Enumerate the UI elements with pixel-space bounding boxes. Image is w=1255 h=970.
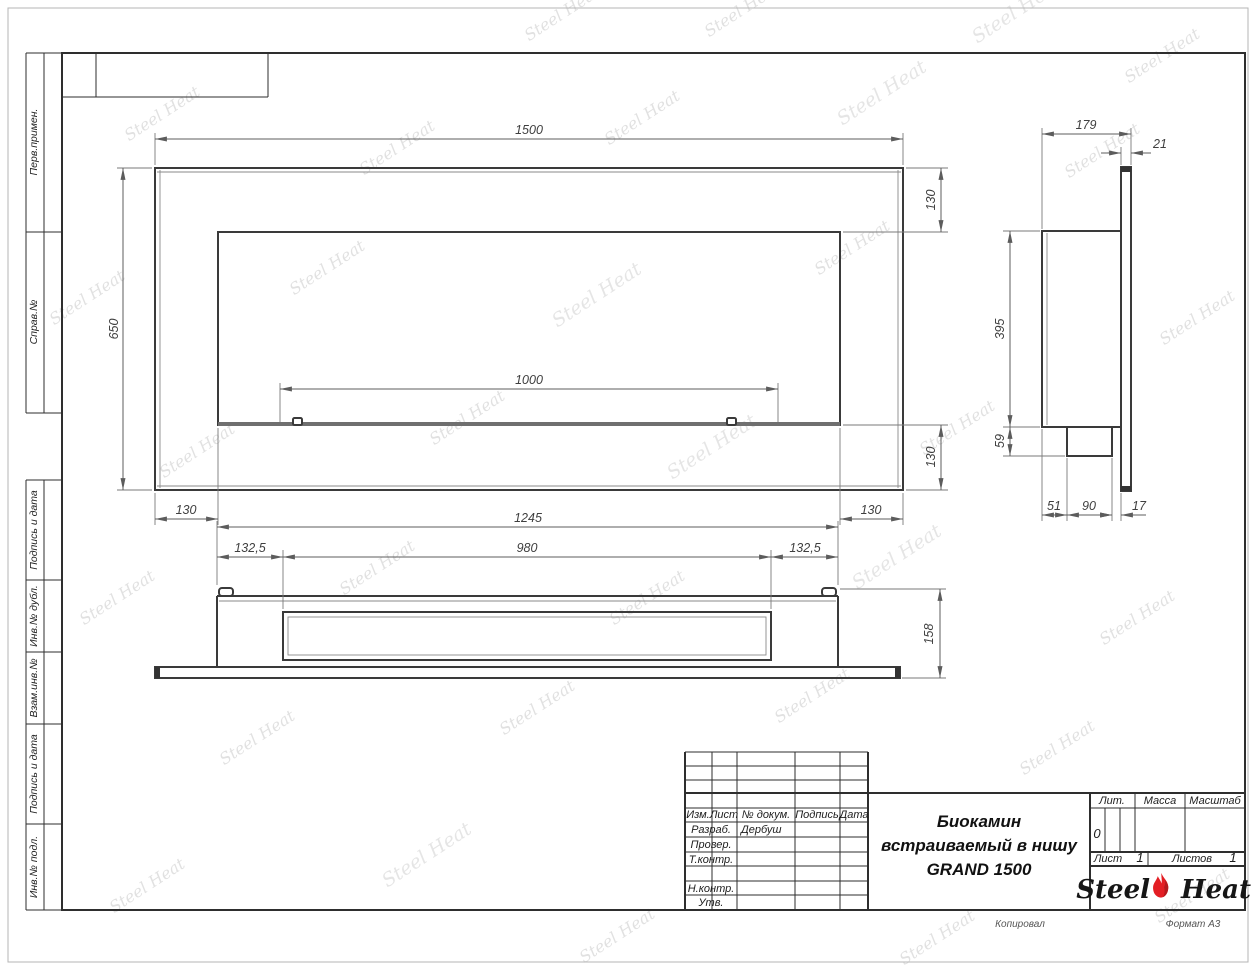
margin-label-perv-primen: Перв.примен. [28,109,40,176]
mass-label: Масса [1144,795,1177,807]
sheets-value: 1 [1229,850,1236,865]
dim-side-body-height: 395 [993,319,1007,340]
dim-bottom-margin-right: 132,5 [789,541,820,555]
watermark: Steel Heat [771,664,854,727]
watermark: Steel Heat [521,0,604,45]
side-view-dimensions: 179 21 395 59 51 90 17 [993,118,1167,521]
lit-value: 0 [1093,826,1101,841]
row-prover-label: Провер. [691,839,732,851]
dim-side-panel-thickness: 21 [1152,137,1167,151]
left-margin-blocks: Перв.примен. Справ.№ Подпись и дата Инв.… [26,53,62,910]
watermark: Steel Heat [121,82,204,145]
lit-label: Лит. [1098,795,1125,807]
logo-heat: Heat [1180,875,1251,905]
watermark: Steel Heat [548,258,646,332]
watermark: Steel Heat [1016,716,1099,779]
watermark: Steel Heat [286,236,369,299]
dim-side-tray-height: 59 [993,434,1007,448]
corner-stamp-box [62,53,268,97]
watermark: Steel Heat [811,216,894,279]
watermark: Steel Heat [848,520,946,594]
copied-label: Копировал [995,919,1045,930]
watermark: Steel Heat [663,410,761,484]
watermark: Steel Heat [378,818,476,892]
product-title-line1: Биокамин [937,812,1021,831]
dim-side-tray-depth: 90 [1082,499,1096,513]
col-podpis: Подпись [795,809,839,821]
burner-tab-right [727,418,736,425]
col-data: Дата [837,809,868,821]
row-utv-label: Утв. [698,897,724,909]
margin-label-inv-dubl: Инв.№ дубл. [28,585,40,647]
logo-steel: Steel [1076,875,1150,905]
dim-front-width: 1500 [515,123,543,137]
watermark: Steel Heat [76,566,159,629]
dim-front-burner-width: 1000 [515,373,543,387]
mount-tab-left [219,588,233,596]
dim-side-front-gap: 51 [1047,499,1061,513]
watermark: Steel Heat [426,386,509,449]
row-razrab-value: Дербуш [739,824,782,836]
col-list: Лист [709,809,738,821]
dim-front-offset-top: 130 [924,190,938,211]
watermark: Steel Heat [1121,24,1204,87]
dim-side-depth: 179 [1076,118,1097,132]
watermark: Steel Heat [1156,286,1239,349]
watermark: Steel Heat [1096,586,1179,649]
dim-bottom-margin-left: 132,5 [234,541,265,555]
margin-label-podpis-data-2: Подпись и дата [28,734,40,814]
col-izm: Изм. [686,809,709,821]
watermark: Steel Heat [576,904,659,967]
sheet-border [8,8,1248,962]
watermark: Steel Heat [496,676,579,739]
product-title-line3: GRAND 1500 [927,860,1032,879]
mount-tab-right [822,588,836,596]
front-view [155,168,903,490]
front-panel-plate [155,667,900,678]
margin-label-podpis-data-1: Подпись и дата [28,490,40,570]
sheet-label: Лист [1093,853,1122,865]
burner-slot [283,612,771,660]
row-tkontr-label: Т.контр. [689,854,733,866]
row-nkontr-label: Н.контр. [688,883,735,895]
flame-icon [1153,873,1168,898]
dim-side-back-gap: 17 [1132,499,1147,513]
watermark: Steel Heat [216,706,299,769]
dim-front-height: 650 [107,319,121,340]
watermark: Steel Heat [606,566,689,629]
watermark: Steel Heat [356,116,439,179]
watermark: Steel Heat [968,0,1066,48]
watermark: Steel Heat [106,854,189,917]
side-view [1042,167,1131,491]
scale-label: Масштаб [1189,795,1241,807]
watermark: Steel Heat [156,419,239,482]
dim-front-offset-right: 130 [861,503,882,517]
margin-label-vzam-inv: Взам.инв.№ [28,658,40,717]
dim-bottom-slot-width: 980 [517,541,538,555]
format-label: Формат А3 [1166,919,1221,930]
watermark-layer: Steel Heat Steel Heat Steel Heat Steel H… [46,0,1239,969]
margin-label-inv-podl: Инв.№ подл. [28,836,40,898]
watermark: Steel Heat [336,536,419,599]
watermark: Steel Heat [701,0,784,41]
product-title-line2: встраиваемый в нишу [881,836,1079,855]
margin-label-sprav-no: Справ.№ [28,300,40,345]
row-razrab-label: Разраб. [691,824,731,836]
col-no-dokum: № докум. [742,809,790,821]
sheet-value: 1 [1136,850,1143,865]
dim-front-offset-left: 130 [176,503,197,517]
steelheat-logo: Steel Heat [1076,873,1251,905]
dim-bottom-body-width: 1245 [514,511,542,525]
footer-notes: Копировал Формат А3 [995,919,1221,930]
dim-front-offset-bottom: 130 [924,447,938,468]
sheets-label: Листов [1171,853,1212,865]
watermark: Steel Heat [896,906,979,969]
burner-tray [1067,427,1112,456]
burner-tab-left [293,418,302,425]
drawing-sheet: Steel Heat Steel Heat Steel Heat Steel H… [0,0,1255,970]
dim-bottom-depth: 158 [922,624,936,645]
watermark: Steel Heat [833,56,931,130]
front-view-dimensions: 1500 650 130 130 1000 130 130 [107,123,948,525]
bottom-view [155,588,900,678]
